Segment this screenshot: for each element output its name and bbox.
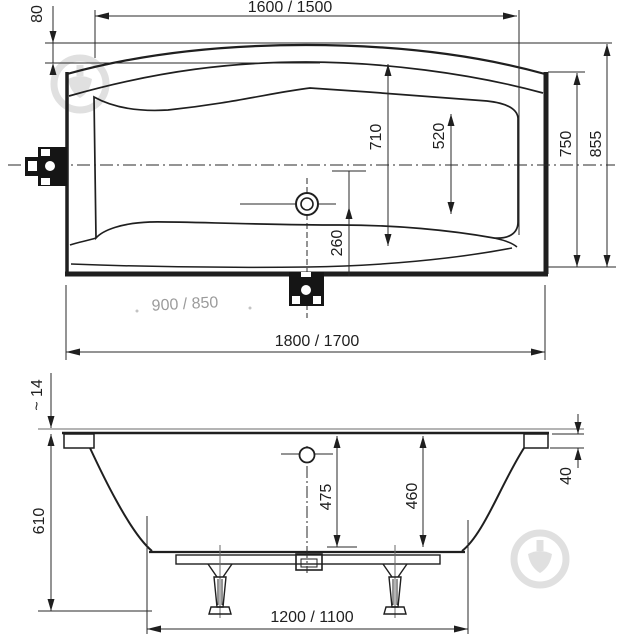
dim-faded: 900 / 850 (136, 294, 252, 314)
tub-rim-wave-outer (67, 45, 545, 74)
rim-lip-left (64, 434, 94, 448)
basin-corner-line (494, 238, 517, 247)
wall-bracket-icon (25, 147, 67, 186)
dim-label-475: 475 (318, 484, 335, 511)
dim-label-14: ~ 14 (29, 379, 46, 411)
dim-label-855: 855 (588, 131, 605, 158)
dim-label-610: 610 (31, 508, 48, 535)
dim-label-750: 750 (558, 131, 575, 158)
dim-label-710: 710 (368, 124, 385, 151)
dim-width-basin: 520 (431, 114, 455, 214)
drain-trap (296, 554, 322, 570)
dim-height-overall: 610 (31, 434, 152, 611)
top-view: 1600 / 1500 80 855 750 710 (8, 0, 616, 360)
rim-lip-right (524, 434, 548, 448)
bathtub-technical-drawing-sheet: 1600 / 1500 80 855 750 710 (0, 0, 622, 639)
dim-rim-thickness: 40 (550, 414, 584, 485)
dim-label-1200-1100: 1200 / 1100 (270, 609, 353, 626)
dim-label-520: 520 (431, 123, 448, 150)
dim-label-80: 80 (29, 5, 46, 23)
basin-corner-line (70, 238, 96, 245)
dim-drain-to-edge: 260 (329, 171, 366, 276)
bathtub-technical-drawing: 1600 / 1500 80 855 750 710 (0, 0, 622, 639)
dim-depth-front: 475 (318, 436, 357, 547)
tub-wall-left (90, 448, 152, 551)
dim-depth-back: 460 (404, 436, 427, 547)
dim-width-inner: 710 (368, 64, 392, 246)
tub-rim-wave-inner (69, 62, 543, 96)
side-view: ~ 14 610 40 475 (29, 373, 584, 634)
dim-label-40: 40 (558, 467, 575, 485)
dim-label-900-850: 900 / 850 (151, 294, 219, 314)
dim-label-260: 260 (329, 230, 346, 257)
floor-bracket-icon (289, 272, 324, 306)
dim-label-460: 460 (404, 483, 421, 510)
tub-wall-right (462, 448, 524, 551)
dim-width-overall: 855 750 (548, 44, 616, 267)
dim-rim-offset: 80 (29, 5, 57, 75)
watermark-logo-icon (514, 533, 566, 585)
dim-label-1800-1700: 1800 / 1700 (275, 333, 360, 350)
dim-label-1600-1500: 1600 / 1500 (248, 0, 333, 16)
floor-edge-line (71, 248, 512, 267)
